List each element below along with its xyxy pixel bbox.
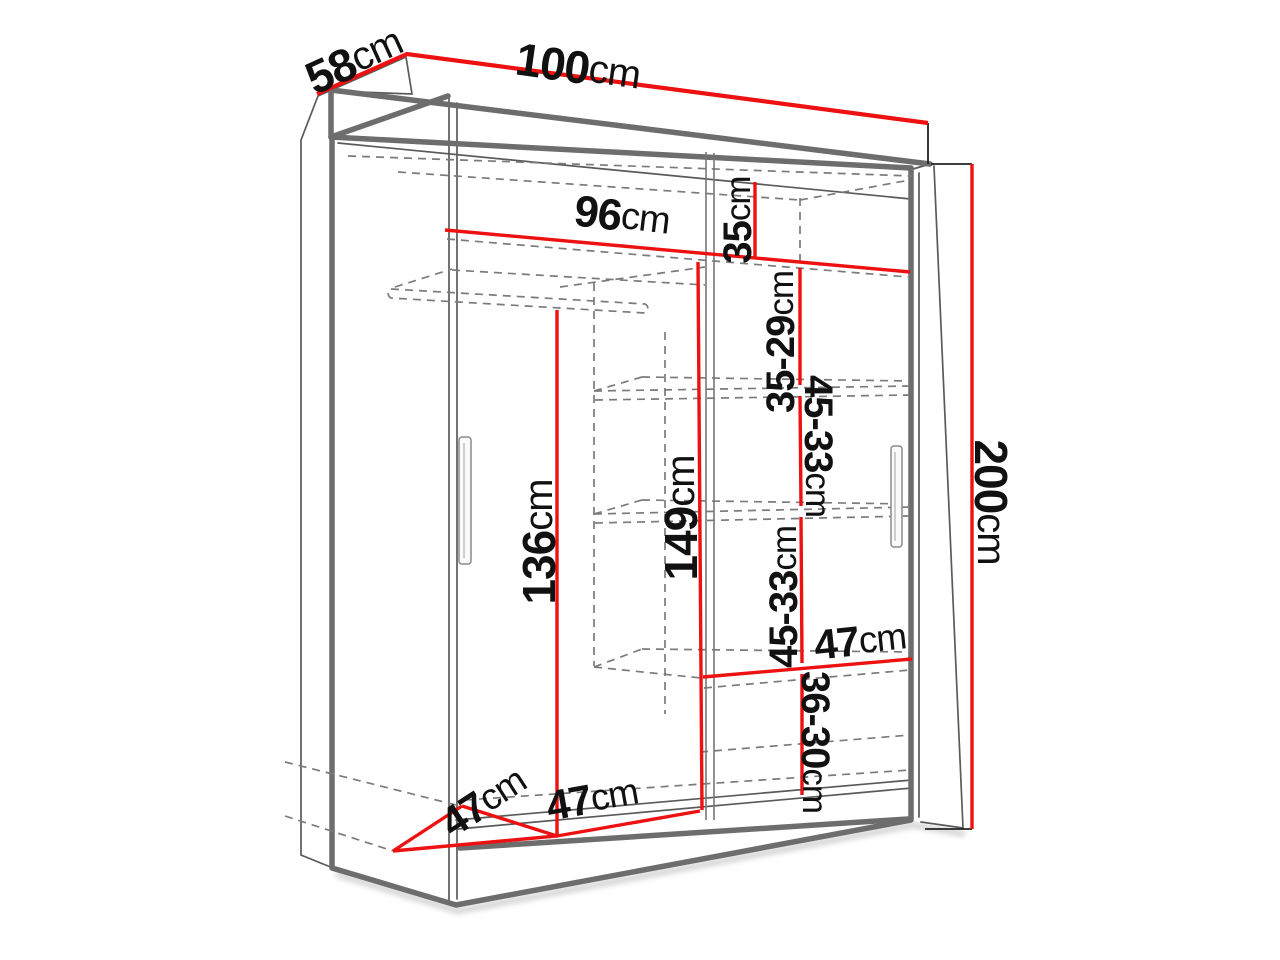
- dim-label-gap-45-33-b: 45-33cm: [762, 526, 806, 668]
- dim-label-gap-45-33-a: 45-33cm: [796, 375, 840, 517]
- wardrobe-diagram: 58cm 100cm 96cm 35cm 35-29cm 45-33cm 45-…: [0, 0, 1280, 960]
- dim-label-inner-149: 149cm: [655, 455, 707, 580]
- dim-label-top-gap-35: 35cm: [716, 176, 760, 263]
- dim-label-width-100: 100cm: [512, 33, 643, 102]
- dim-label-hanging-136: 136cm: [513, 479, 565, 604]
- left-door-handle: [459, 437, 471, 564]
- dim-label-height-200: 200cm: [965, 439, 1017, 564]
- right-door-handle: [891, 446, 902, 547]
- diagram-canvas: 58cm 100cm 96cm 35cm 35-29cm 45-33cm 45-…: [0, 0, 1280, 960]
- dim-label-gap-36-30: 36-30cm: [793, 671, 837, 813]
